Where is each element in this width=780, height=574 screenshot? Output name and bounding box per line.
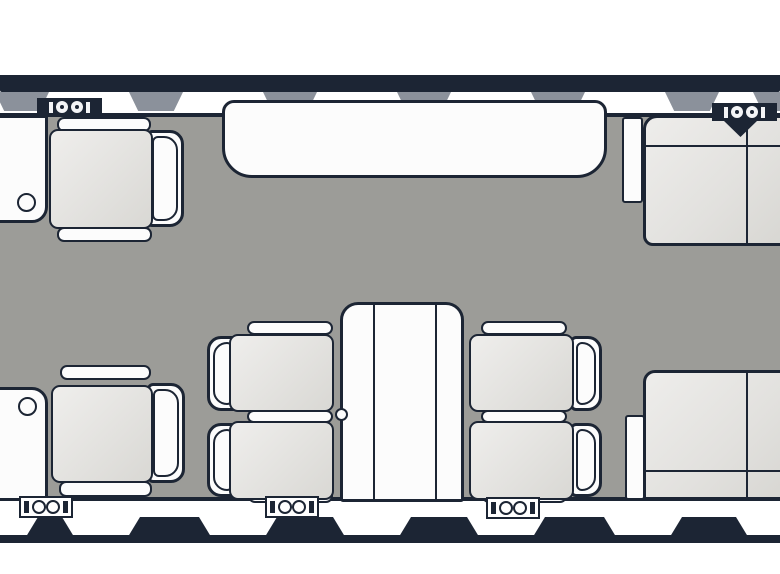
- double-circle-marker-icon: [19, 496, 73, 518]
- seat-armrest: [57, 227, 152, 242]
- table-fold-line: [373, 304, 375, 500]
- seat-cushion: [469, 334, 574, 412]
- cabin-window-icon: [467, 517, 545, 535]
- double-circle-marker-icon: [265, 496, 319, 518]
- marker-circle: [278, 500, 292, 514]
- marker-bracket: [761, 107, 765, 118]
- marker-circle: [499, 501, 513, 515]
- seat-backrest: [570, 336, 602, 411]
- marker-circle: [46, 500, 60, 514]
- seat-backrest: [570, 423, 602, 497]
- seat-cushion: [229, 334, 334, 412]
- marker-circle: [746, 106, 758, 118]
- cabin-window-icon: [736, 517, 780, 535]
- marker-bracket: [530, 502, 535, 514]
- marker-bracket: [49, 102, 53, 113]
- cabin-window-icon: [333, 517, 411, 535]
- seat-cushion: [49, 129, 153, 229]
- marker-circle: [71, 101, 83, 113]
- cabin-floorplan: [0, 0, 780, 574]
- seat-cushion: [469, 421, 574, 500]
- marker-bracket: [724, 107, 728, 118]
- sofa-backrest-line: [645, 145, 780, 147]
- marker-circle: [56, 101, 68, 113]
- double-circle-marker-icon: [486, 497, 540, 519]
- marker-circle: [32, 500, 46, 514]
- seat-cushion: [51, 385, 153, 483]
- cabin-window-icon: [604, 517, 682, 535]
- marker-circle: [731, 106, 743, 118]
- seat-armrest: [481, 321, 567, 335]
- table-hinge-icon: [335, 408, 348, 421]
- fuselage-wall-top: [0, 75, 780, 92]
- cabin-window-icon: [62, 517, 140, 535]
- sofa-backrest-line: [645, 470, 780, 472]
- seat-cushion: [229, 421, 334, 500]
- marker-circle: [292, 500, 306, 514]
- marker-bracket: [491, 502, 496, 514]
- marker-bracket: [309, 501, 314, 513]
- cupholder-icon: [18, 397, 37, 416]
- seat-armrest: [247, 321, 333, 335]
- marker-bracket: [24, 501, 29, 513]
- marker-bracket: [86, 102, 90, 113]
- table-fold-line: [435, 304, 437, 500]
- marker-circle: [513, 501, 527, 515]
- sofa-top-right: [643, 115, 780, 246]
- marker-bracket: [63, 501, 68, 513]
- cabin-window-icon: [199, 517, 277, 535]
- double-circle-marker-icon: [37, 98, 102, 116]
- sofa-cushion-divider: [746, 117, 748, 244]
- seat-armrest: [60, 365, 151, 380]
- cupholder-icon: [17, 193, 36, 212]
- marker-bracket: [270, 501, 275, 513]
- divan: [222, 100, 607, 178]
- side-ledge-bottom-right: [625, 415, 645, 500]
- side-ledge-top-right: [622, 117, 643, 203]
- sofa-cushion-divider: [746, 372, 748, 498]
- sofa-bottom-right: [643, 370, 780, 500]
- cabin-window-icon: [0, 517, 38, 535]
- cabin-window-icon: [665, 92, 719, 111]
- fuselage-wall-bottom: [0, 517, 780, 543]
- cabin-window-icon: [129, 92, 183, 111]
- conference-table: [340, 302, 464, 502]
- double-circle-marker-icon: [712, 103, 777, 121]
- seat-armrest: [59, 481, 152, 497]
